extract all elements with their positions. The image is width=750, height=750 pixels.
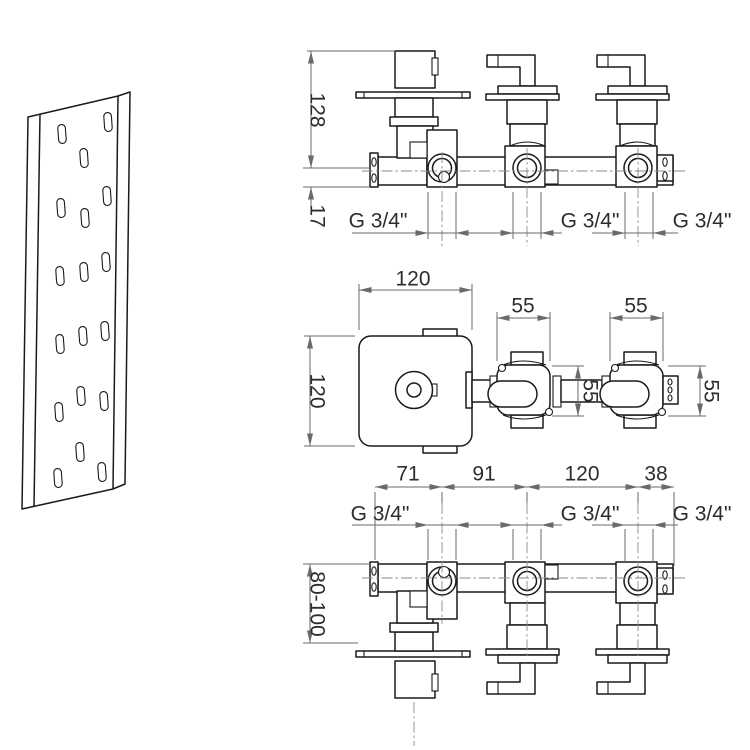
install-chain-dim-label-1: 71 xyxy=(396,463,419,486)
plan-valve-1 xyxy=(488,352,553,428)
valve-flange xyxy=(486,649,559,655)
lever-handle xyxy=(597,663,645,694)
valve-flange xyxy=(486,94,559,100)
front-height-dim-label: 128 xyxy=(306,92,329,127)
front-thread-label-2: G 3/4" xyxy=(561,210,620,233)
install-chain-dim-label-3: 120 xyxy=(564,463,599,486)
thermostat-knob xyxy=(396,372,433,409)
plan-view: 120 120 55 55 55 55 xyxy=(304,268,723,454)
valve-flange xyxy=(596,649,669,655)
install-depth-range-dim-label: 80-100 xyxy=(306,571,329,636)
thermostat-flange xyxy=(356,651,470,657)
plan-valve1-width-dim-label: 55 xyxy=(511,295,534,318)
right-threaded-port xyxy=(657,568,673,594)
valve-flange xyxy=(596,94,669,100)
thermostat-cartridge xyxy=(395,661,435,698)
technical-drawing-page: 128 17 G 3/4" G 3/4" G 3/4" xyxy=(0,0,750,750)
plan-body xyxy=(359,329,678,453)
lever-handle-top xyxy=(600,381,649,407)
front-thread-label-3: G 3/4" xyxy=(673,210,732,233)
front-body xyxy=(356,51,673,187)
install-chain-dim-label-2: 91 xyxy=(472,463,495,486)
plan-height-dim-label: 120 xyxy=(306,373,329,408)
thermostat-flange xyxy=(356,92,470,98)
lever-handle xyxy=(487,663,535,694)
installation-view: 71 91 120 38 G 3/4" G 3/4" G 3/4" xyxy=(303,463,731,747)
install-thread-label-3: G 3/4" xyxy=(673,503,732,526)
front-thread-label-1: G 3/4" xyxy=(349,210,408,233)
cartridge-clip xyxy=(432,58,438,75)
install-thread-label-2: G 3/4" xyxy=(561,503,620,526)
cartridge-clip xyxy=(432,674,438,691)
plan-valve-height-dim-label: 55 xyxy=(700,379,723,402)
install-chain-dim-label-4: 38 xyxy=(644,463,667,486)
plan-width-dim-label: 120 xyxy=(395,268,430,291)
plan-body-depth-dim-label: 55 xyxy=(579,379,602,402)
side-threaded-port xyxy=(663,376,678,404)
thermostat-cartridge xyxy=(395,51,435,88)
install-body xyxy=(356,562,673,698)
plan-valve2-width-dim-label: 55 xyxy=(624,295,647,318)
lever-handle xyxy=(487,55,535,86)
mounting-rail-isometric xyxy=(22,92,130,509)
lever-handle xyxy=(597,55,645,86)
front-offset-dim-label: 17 xyxy=(306,204,329,227)
right-threaded-port xyxy=(657,155,673,181)
front-view: 128 17 G 3/4" G 3/4" G 3/4" xyxy=(303,51,731,246)
install-thread-label-1: G 3/4" xyxy=(351,503,410,526)
plan-valve-2 xyxy=(600,352,666,428)
lever-handle-top xyxy=(488,381,537,407)
drawing-canvas: 128 17 G 3/4" G 3/4" G 3/4" xyxy=(0,0,750,750)
